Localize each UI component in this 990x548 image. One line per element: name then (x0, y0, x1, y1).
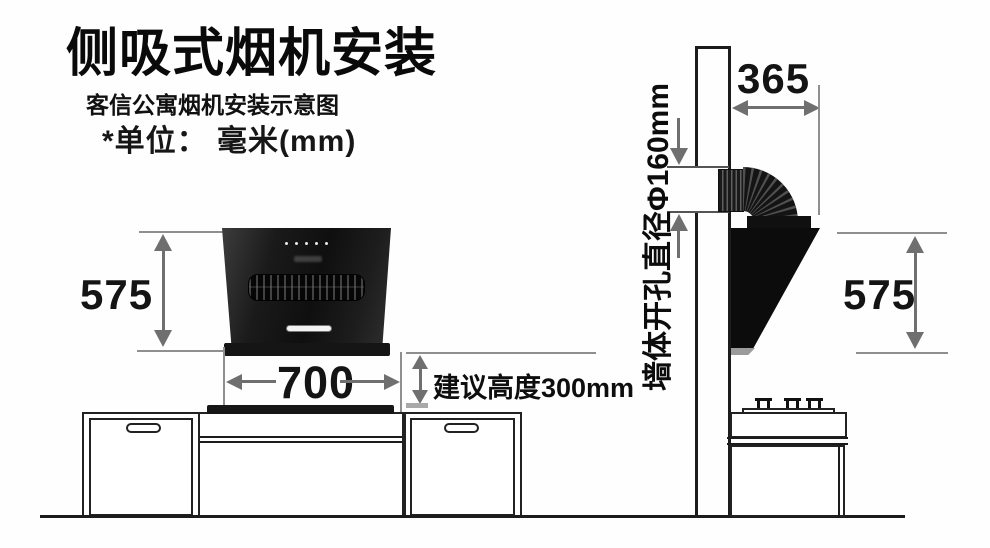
dimension-arrow-shaft (340, 380, 386, 383)
side-cabinet (730, 445, 845, 517)
extension-line (856, 352, 948, 354)
front-width-value: 700 (277, 360, 337, 405)
center-counter (198, 412, 404, 517)
arrow-down-icon (906, 332, 924, 349)
dimension-arrow-shaft (677, 118, 680, 150)
cooktop-strip (207, 405, 394, 414)
dimension-arrow-shaft (162, 248, 165, 334)
dimension-arrow-shaft (240, 380, 276, 383)
dimension-arrow-shaft (746, 106, 806, 109)
clearance-note: 建议高度300mm (433, 366, 634, 405)
light-bar (286, 325, 332, 332)
counter-edge-line (727, 437, 848, 439)
touch-control-dot (305, 242, 308, 245)
stove-body (730, 412, 847, 438)
left-cabinet-handle (126, 423, 161, 433)
arrow-right-icon (384, 374, 400, 390)
range-hood-side-profile (731, 228, 820, 350)
wall-hole-note: 墙体开孔直径Φ160mm (642, 82, 676, 392)
touch-control-dot (325, 242, 328, 245)
arrow-down-icon (154, 330, 172, 347)
touch-control-dot (295, 242, 298, 245)
side-cabinet-inner-line (838, 445, 840, 517)
side-depth-value: 365 (737, 58, 807, 100)
suction-grille (248, 274, 365, 301)
touch-control-dot (285, 242, 288, 245)
page-subtitle: 客信公寓烟机安装示意图 (86, 86, 339, 120)
counter-edge-line (200, 441, 402, 443)
wall-line (695, 212, 698, 517)
touch-control-dot (315, 242, 318, 245)
installation-diagram: 侧吸式烟机安装 客信公寓烟机安装示意图 *单位： 毫米(mm) 575 700 … (0, 0, 990, 548)
duct-collar (747, 216, 811, 229)
extension-line (400, 352, 402, 416)
counter-edge-line (200, 436, 402, 438)
extension-line (837, 232, 947, 234)
dimension-arrow-shaft (419, 366, 422, 392)
range-hood-side-tip (731, 348, 755, 355)
extension-line (818, 85, 820, 215)
dimension-arrow-shaft (677, 228, 680, 258)
wall-line (695, 46, 698, 168)
front-height-value: 575 (80, 274, 142, 316)
arrow-down-icon (412, 390, 428, 404)
extension-line (137, 350, 228, 352)
range-hood-base (224, 343, 390, 356)
wall-top-cap (695, 46, 731, 49)
wall-line (728, 46, 731, 169)
brand-logo (294, 256, 322, 262)
hole-tick-line (667, 166, 729, 168)
page-title: 侧吸式烟机安装 (66, 26, 437, 83)
unit-note: *单位： 毫米(mm) (102, 116, 356, 160)
extension-line (406, 352, 596, 354)
extension-line (139, 231, 223, 233)
right-cabinet-handle (444, 423, 479, 433)
side-height-value: 575 (843, 274, 903, 316)
countertop-shading (406, 403, 428, 408)
